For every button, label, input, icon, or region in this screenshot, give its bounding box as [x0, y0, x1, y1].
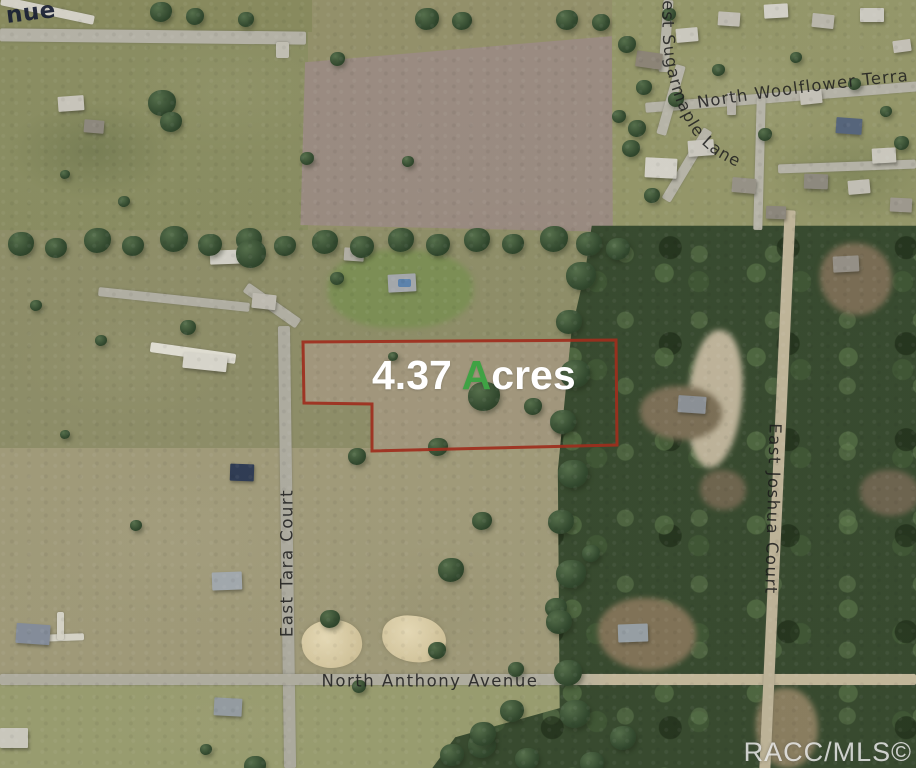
house-roof: [0, 728, 28, 748]
tree: [415, 8, 439, 30]
house-roof: [687, 139, 714, 157]
forest-clearing: [820, 243, 892, 315]
acreage-prefix: 4.37: [372, 352, 462, 398]
acreage-highlight: A: [462, 352, 492, 398]
parcel-acreage-label: 4.37 Acres: [372, 352, 576, 399]
house-roof: [764, 3, 789, 18]
acreage-suffix: cres: [491, 352, 575, 398]
tree: [580, 752, 604, 768]
house-roof: [811, 13, 834, 29]
house-roof: [635, 50, 663, 69]
house-roof: [890, 197, 913, 212]
street-label-anthony: North Anthony Avenue: [322, 672, 539, 691]
house-roof: [835, 117, 862, 135]
forest-clearing: [640, 386, 722, 440]
street-label-tara: East Tara Court: [278, 489, 297, 637]
house-roof: [644, 157, 677, 179]
house-roof: [83, 119, 104, 134]
house-roof: [804, 174, 829, 190]
house-roof: [727, 93, 736, 115]
house-roof: [677, 395, 706, 414]
forest-clearing: [700, 470, 746, 510]
aerial-parcel-map: est Sugarmaple Lane North Woolflower Ter…: [0, 0, 916, 768]
road-segment: [57, 612, 64, 640]
house-roof: [212, 571, 243, 590]
tree: [592, 14, 610, 31]
house-roof: [847, 179, 870, 195]
house-roof: [251, 293, 276, 310]
tree: [556, 10, 578, 30]
road-segment: [276, 42, 289, 58]
house-roof: [675, 27, 698, 43]
house-roof: [731, 177, 756, 194]
house-roof: [872, 147, 897, 163]
house-roof: [58, 95, 85, 112]
house-roof: [860, 8, 884, 22]
house-roof: [15, 623, 50, 645]
pasture-field: [0, 32, 308, 230]
house-roof: [799, 89, 822, 105]
house-roof: [766, 206, 786, 220]
tree: [244, 756, 266, 768]
house-roof: [833, 255, 860, 272]
tree: [515, 748, 539, 768]
forest-clearing: [860, 470, 916, 516]
swimming-pool: [398, 279, 411, 287]
mls-watermark: RACC/MLS©: [744, 737, 912, 768]
house-roof: [214, 697, 243, 716]
tree: [452, 12, 472, 30]
house-roof: [892, 39, 911, 53]
house-roof: [618, 623, 649, 642]
house-roof: [230, 464, 255, 482]
house-roof: [718, 11, 741, 27]
